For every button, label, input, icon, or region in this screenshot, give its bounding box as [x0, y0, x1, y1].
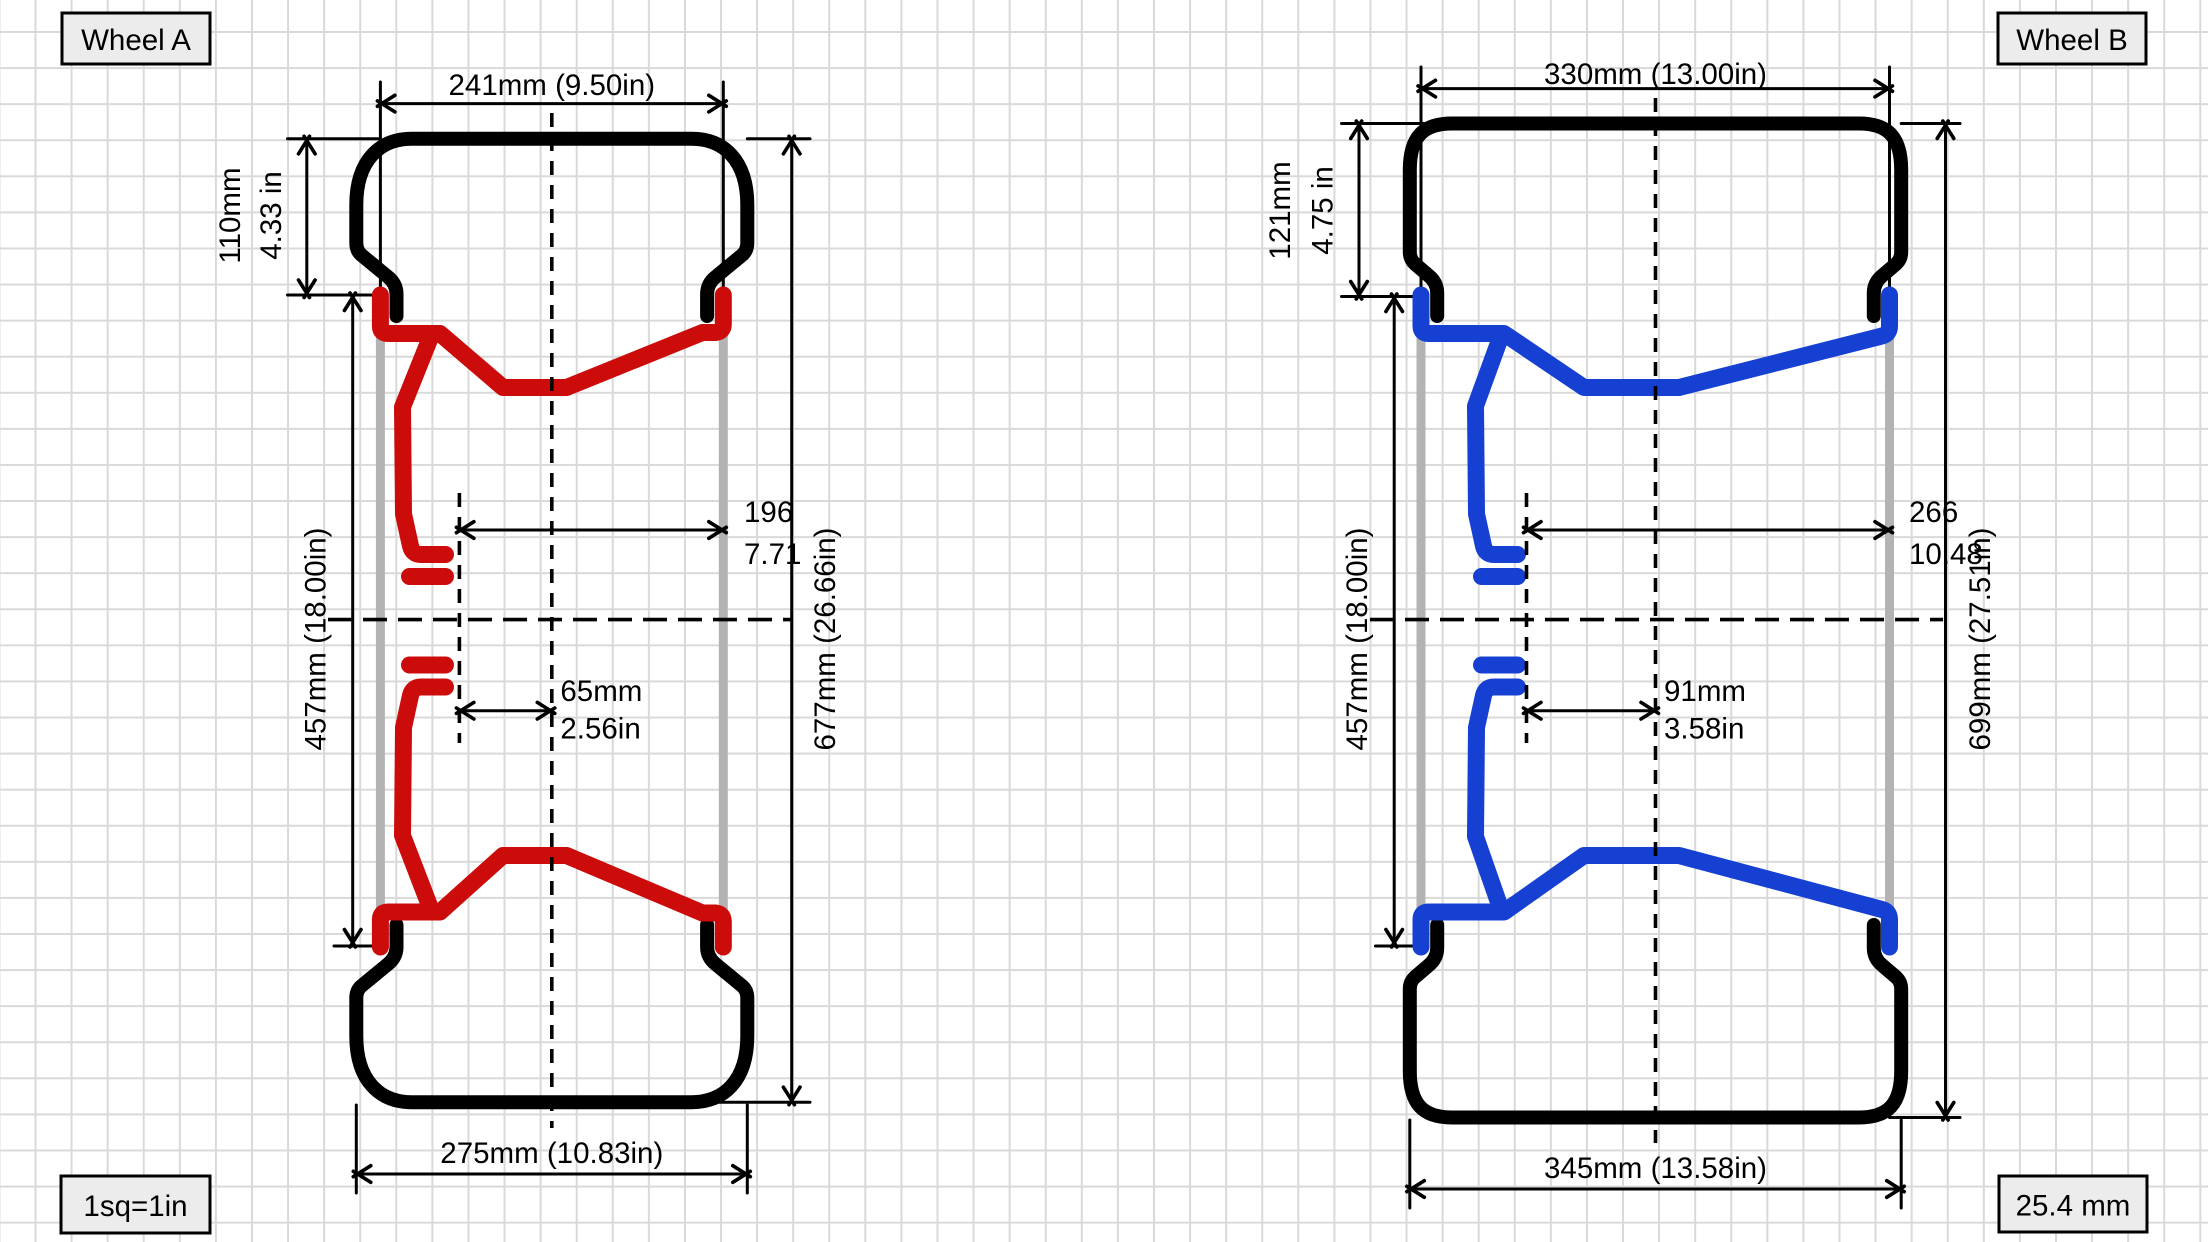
- svg-text:3.58in: 3.58in: [1664, 713, 1744, 746]
- svg-text:121mm: 121mm: [1264, 161, 1297, 259]
- svg-text:2.56in: 2.56in: [560, 713, 640, 746]
- svg-text:91mm: 91mm: [1664, 675, 1746, 708]
- svg-text:241mm (9.50in): 241mm (9.50in): [449, 69, 656, 102]
- svg-text:196: 196: [744, 496, 793, 529]
- svg-text:1sq=1in: 1sq=1in: [83, 1190, 187, 1223]
- svg-text:275mm (10.83in): 275mm (10.83in): [440, 1137, 663, 1170]
- svg-text:4.33 in: 4.33 in: [255, 171, 288, 260]
- svg-text:7.71: 7.71: [744, 538, 801, 571]
- svg-text:330mm (13.00in): 330mm (13.00in): [1544, 58, 1767, 91]
- svg-text:266: 266: [1909, 496, 1958, 529]
- svg-text:457mm (18.00in): 457mm (18.00in): [1341, 528, 1374, 751]
- svg-text:Wheel A: Wheel A: [81, 24, 191, 57]
- svg-text:65mm: 65mm: [560, 675, 642, 708]
- svg-text:25.4 mm: 25.4 mm: [2016, 1190, 2131, 1223]
- svg-text:Wheel B: Wheel B: [2016, 24, 2128, 57]
- svg-text:345mm (13.58in): 345mm (13.58in): [1544, 1152, 1767, 1185]
- svg-text:10.48: 10.48: [1909, 538, 1983, 571]
- svg-text:457mm (18.00in): 457mm (18.00in): [300, 528, 333, 751]
- svg-text:4.75 in: 4.75 in: [1307, 166, 1340, 255]
- svg-text:677mm (26.66in): 677mm (26.66in): [809, 528, 842, 751]
- svg-text:110mm: 110mm: [214, 167, 247, 263]
